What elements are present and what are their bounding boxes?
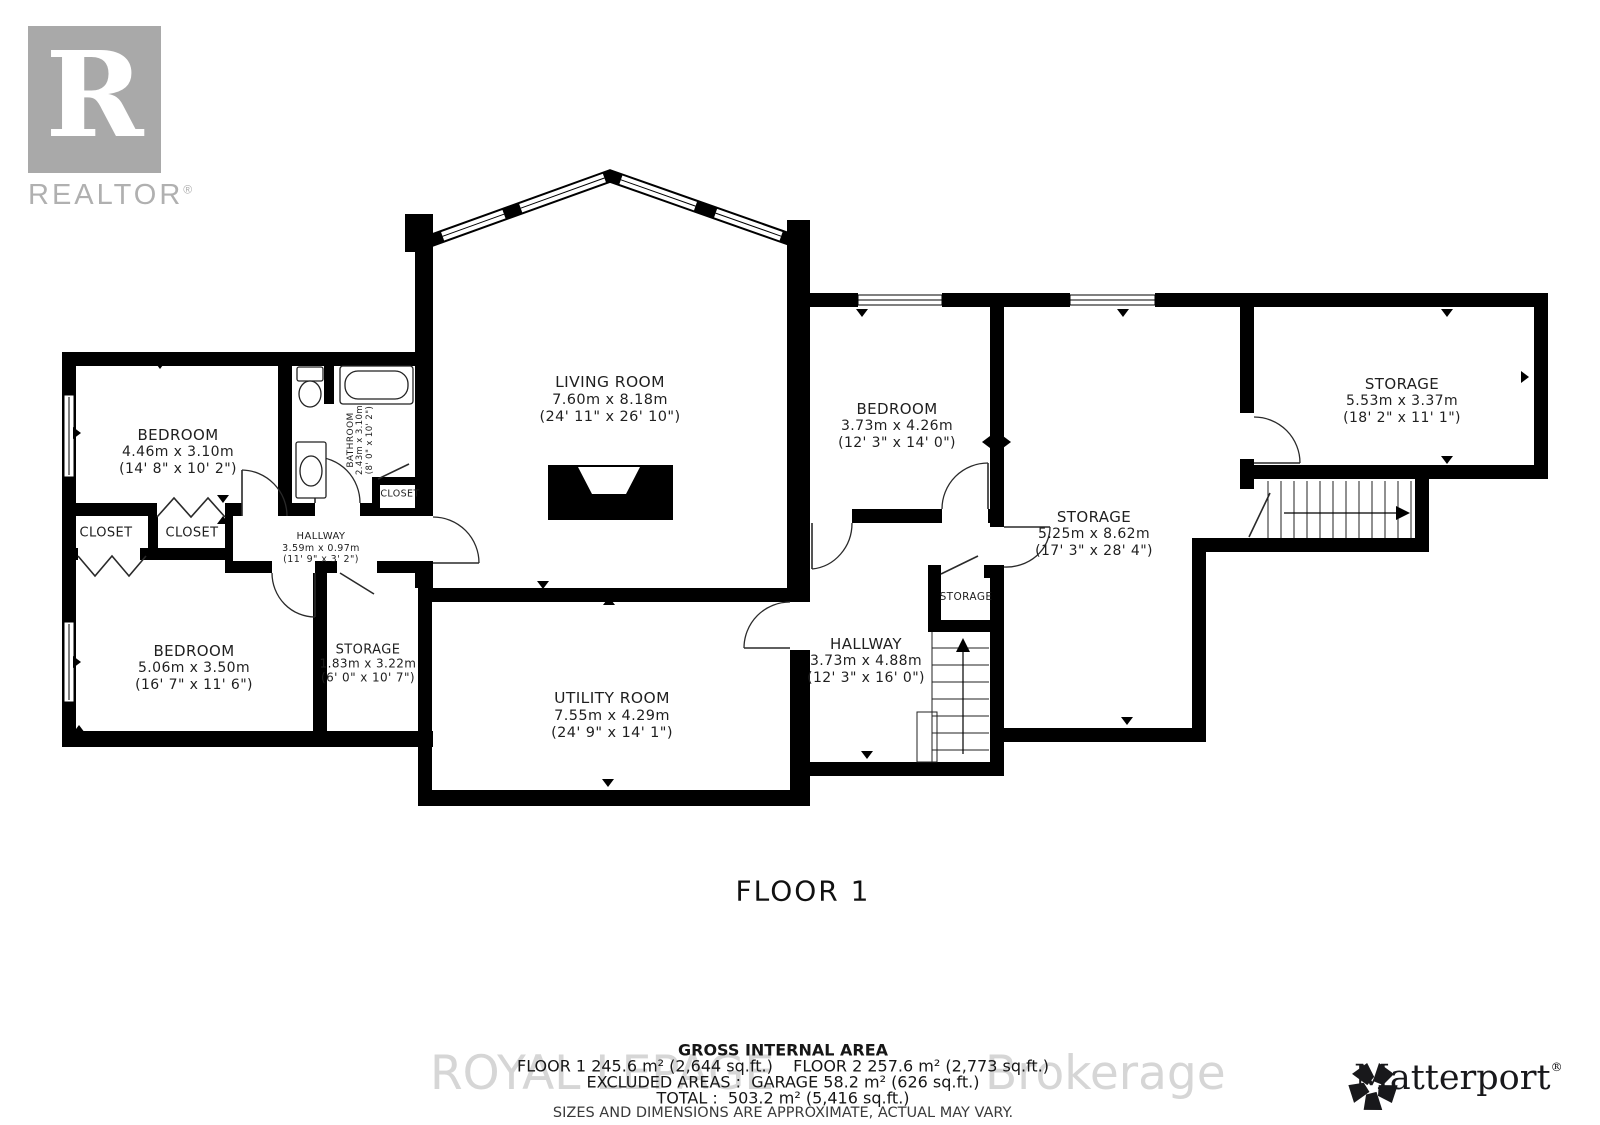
matterport-registered-icon: ® xyxy=(1551,1060,1563,1074)
fireplace-icon xyxy=(548,465,673,520)
stairs-up-icon xyxy=(917,632,989,762)
doors xyxy=(78,417,1300,648)
walls xyxy=(62,214,1548,806)
toilet-icon xyxy=(297,367,323,381)
floorplan-drawing xyxy=(0,0,1600,1125)
floor-label: FLOOR 1 xyxy=(736,875,871,908)
living-room-bay-windows xyxy=(424,176,792,243)
matterport-logo: Matterport® xyxy=(1346,1058,1563,1098)
stairs-side-icon xyxy=(1268,481,1411,538)
summary-disclaimer: SIZES AND DIMENSIONS ARE APPROXIMATE, AC… xyxy=(553,1105,1013,1121)
floorplan-page: R REALTOR® xyxy=(0,0,1600,1125)
matterport-pinwheel-icon xyxy=(1346,1058,1400,1114)
